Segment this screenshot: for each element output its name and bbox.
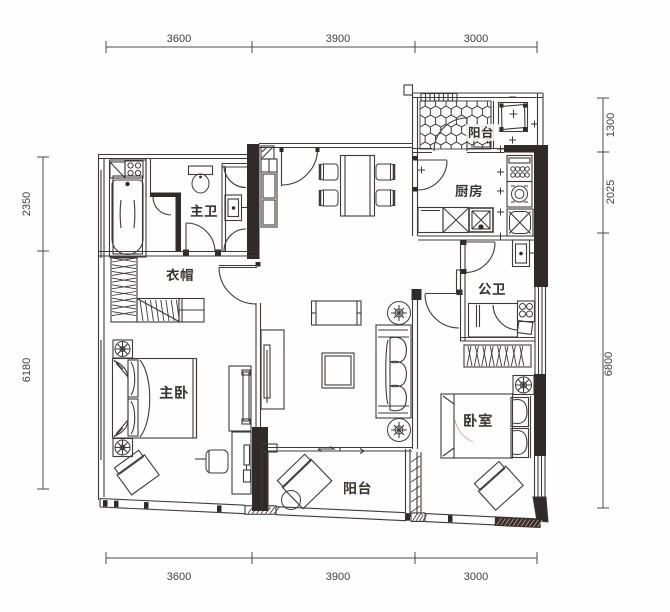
svg-text:3000: 3000 bbox=[464, 33, 488, 45]
svg-text:3000: 3000 bbox=[464, 571, 488, 583]
svg-text:2025: 2025 bbox=[605, 180, 617, 204]
svg-text:3900: 3900 bbox=[326, 571, 350, 583]
svg-text:3900: 3900 bbox=[326, 33, 350, 45]
svg-text:6800: 6800 bbox=[603, 352, 615, 376]
svg-text:6180: 6180 bbox=[21, 358, 33, 382]
svg-text:2350: 2350 bbox=[21, 192, 33, 216]
svg-text:3600: 3600 bbox=[167, 33, 191, 45]
svg-text:3600: 3600 bbox=[167, 571, 191, 583]
svg-text:1300: 1300 bbox=[605, 113, 617, 137]
